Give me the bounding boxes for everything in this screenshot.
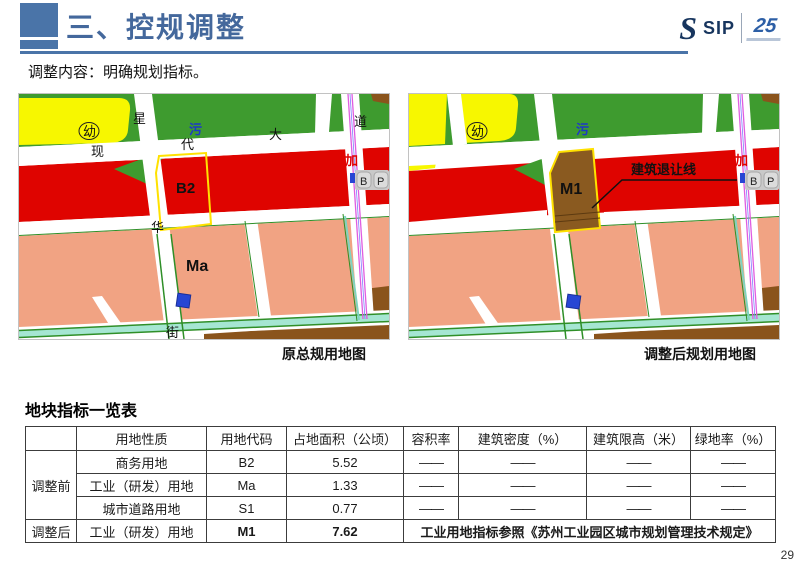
sip-logo-text: SIP xyxy=(703,18,735,39)
col-land-nature: 用地性质 xyxy=(77,427,207,451)
cell-height: —— xyxy=(587,474,691,497)
cell-code-m1: M1 xyxy=(207,520,287,543)
road-label-jie: 街 xyxy=(166,325,179,339)
col-land-code: 用地代码 xyxy=(207,427,287,451)
table-row: 调整前 商务用地 B2 5.52 —— —— —— —— xyxy=(26,451,776,474)
kindergarten-label: 幼 xyxy=(471,124,484,139)
road-label-hua: 华 xyxy=(151,220,164,235)
gas-label: 加 xyxy=(344,153,358,168)
cell-code: Ma xyxy=(207,474,287,497)
table-title: 地块指标一览表 xyxy=(25,397,137,421)
road-label-xian: 现 xyxy=(91,144,104,159)
road-label-dao: 道 xyxy=(354,114,367,129)
col-far: 容积率 xyxy=(404,427,459,451)
cell-nature: 工业（研发）用地 xyxy=(77,474,207,497)
cell-far: —— xyxy=(404,451,459,474)
kindergarten-parcel xyxy=(19,98,130,145)
col-height-limit: 建筑限高（米） xyxy=(587,427,691,451)
before-group-label: 调整前 xyxy=(26,451,77,520)
road-label-da: 大 xyxy=(269,127,282,142)
plot-b2-label: B2 xyxy=(176,180,195,197)
table-row: 工业（研发）用地 Ma 1.33 —— —— —— —— xyxy=(26,474,776,497)
cell-nature: 工业（研发）用地 xyxy=(77,520,207,543)
col-density: 建筑密度（%） xyxy=(459,427,587,451)
kindergarten-label: 幼 xyxy=(83,124,96,139)
caption-before: 原总规用地图 xyxy=(18,344,388,364)
header-underline xyxy=(20,51,688,54)
cell-code: S1 xyxy=(207,497,287,520)
adjustment-subtitle: 调整内容：明确规划指标。 xyxy=(28,61,208,82)
cell-nature: 商务用地 xyxy=(77,451,207,474)
cell-area-m1: 7.62 xyxy=(287,520,404,543)
parking-b-label: B xyxy=(360,176,367,188)
cell-code: B2 xyxy=(207,451,287,474)
cell-density: —— xyxy=(459,451,587,474)
gas-label: 加 xyxy=(734,153,748,168)
plot-m1-label: M1 xyxy=(560,181,582,198)
col-area: 占地面积（公顷） xyxy=(287,427,404,451)
sip-logo-swoosh-icon: S xyxy=(679,12,697,44)
cell-area: 0.77 xyxy=(287,497,404,520)
pump-marker-icon xyxy=(176,293,191,308)
header-accent-square xyxy=(20,3,58,49)
logo-divider xyxy=(741,13,742,43)
cell-height: —— xyxy=(587,451,691,474)
page-title: 三、控规调整 xyxy=(66,6,246,46)
sewage-label: 污 xyxy=(189,122,202,137)
table-row-after: 调整后 工业（研发）用地 M1 7.62 工业用地指标参照《苏州工业园区城市规划… xyxy=(26,520,776,543)
anniversary-25: 25 xyxy=(753,16,778,36)
land-use-map-after: 幼 污 加 B P M1 建筑退让线 xyxy=(408,93,780,340)
cell-area: 5.52 xyxy=(287,451,404,474)
sewage-label: 污 xyxy=(576,122,589,137)
cell-nature: 城市道路用地 xyxy=(77,497,207,520)
parking-p-label: P xyxy=(377,176,384,188)
parking-b-label: B xyxy=(750,176,757,188)
cell-density: —— xyxy=(459,474,587,497)
cell-density: —— xyxy=(459,497,587,520)
cell-far: —— xyxy=(404,474,459,497)
table-row: 城市道路用地 S1 0.77 —— —— —— —— xyxy=(26,497,776,520)
plot-indicator-table: 用地性质 用地代码 占地面积（公顷） 容积率 建筑密度（%） 建筑限高（米） 绿… xyxy=(25,426,776,543)
col-blank xyxy=(26,427,77,451)
caption-after: 调整后规划用地图 xyxy=(408,344,778,364)
pump-marker-icon xyxy=(566,294,581,309)
page-number: 29 xyxy=(781,548,794,562)
cell-green: —— xyxy=(691,474,776,497)
anniversary-small-text xyxy=(746,38,780,41)
road-label-xing: 星 xyxy=(133,111,146,126)
road-label-dai: 代 xyxy=(181,137,194,152)
plot-ma-label: Ma xyxy=(186,258,208,275)
cell-far: —— xyxy=(404,497,459,520)
cell-area: 1.33 xyxy=(287,474,404,497)
land-use-map-before: 幼 星 污 代 现 大 道 加 B P B2 华 Ma 街 xyxy=(18,93,390,340)
table-header-row: 用地性质 用地代码 占地面积（公顷） 容积率 建筑密度（%） 建筑限高（米） 绿… xyxy=(26,427,776,451)
col-green-ratio: 绿地率（%） xyxy=(691,427,776,451)
cell-green: —— xyxy=(691,451,776,474)
sip-logo: S SIP 25 xyxy=(679,8,782,48)
cell-green: —— xyxy=(691,497,776,520)
setback-line-label: 建筑退让线 xyxy=(631,162,696,177)
after-group-label: 调整后 xyxy=(26,520,77,543)
industrial-standard-note: 工业用地指标参照《苏州工业园区城市规划管理技术规定》 xyxy=(404,520,776,543)
parking-p-label: P xyxy=(767,176,774,188)
cell-height: —— xyxy=(587,497,691,520)
anniversary-mark: 25 xyxy=(746,16,784,41)
